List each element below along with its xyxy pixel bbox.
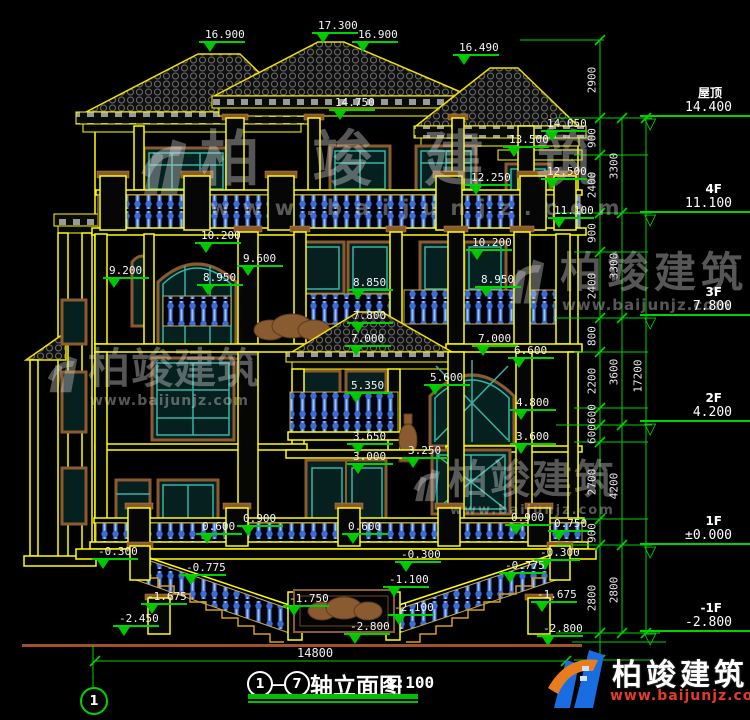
floor-level-marker: 4F11.100▽ bbox=[640, 182, 750, 213]
chain-dim-label: 3300 bbox=[608, 253, 621, 280]
chain-dim-label: 800 bbox=[586, 326, 599, 346]
elevation-marker: -2.800 bbox=[344, 621, 390, 644]
elevation-marker: -2.800 bbox=[537, 623, 583, 646]
elevation-marker: 5.350 bbox=[345, 380, 391, 403]
elevation-marker: -0.300 bbox=[92, 546, 138, 569]
floor-level-marker: 3F7.800▽ bbox=[640, 285, 750, 316]
cad-elevation-screenshot: .roof{fill:url(#tiles);stroke:#f0e000;st… bbox=[0, 0, 750, 720]
elevation-marker: 8.950 bbox=[197, 272, 243, 295]
elevation-marker: 12.500 bbox=[541, 166, 587, 189]
axis-dash: — bbox=[271, 677, 285, 693]
elevation-marker: 14.750 bbox=[329, 97, 375, 120]
chain-dim-label: 2400 bbox=[586, 273, 599, 300]
chain-dim-label: 600 bbox=[586, 424, 599, 444]
elevation-marker: -1.100 bbox=[383, 574, 429, 597]
elevation-marker: 7.800 bbox=[347, 310, 393, 333]
logo-website: www.baijunjz.com bbox=[610, 688, 750, 704]
drawing-scale: 1:100 bbox=[386, 673, 434, 692]
chain-dim-label: 17200 bbox=[632, 359, 645, 392]
title-underline-thick bbox=[248, 694, 418, 699]
floor-level-marker: 屋顶14.400▽ bbox=[640, 86, 750, 117]
elevation-marker: 16.900 bbox=[352, 29, 398, 52]
elevation-marker: 12.250 bbox=[465, 172, 511, 195]
floor-level-marker: 2F4.200▽ bbox=[640, 391, 750, 422]
elevation-marker: 5.600 bbox=[424, 372, 470, 395]
elevation-marker: -0.775 bbox=[499, 560, 545, 583]
elevation-marker: -0.775 bbox=[180, 562, 226, 585]
elevation-marker: 0.900 bbox=[237, 513, 283, 536]
elevation-marker: 0.600 bbox=[342, 521, 388, 544]
chain-dim-label: 3300 bbox=[608, 153, 621, 180]
axis-bubble-1: 1 bbox=[80, 687, 108, 715]
overall-width-dim: 14800 bbox=[297, 646, 333, 660]
elevation-marker: -1.675 bbox=[531, 589, 577, 612]
chain-dim-label: 2900 bbox=[586, 67, 599, 94]
chain-dim-label: 2400 bbox=[586, 172, 599, 199]
chain-dim-label: 900 bbox=[586, 523, 599, 543]
elevation-marker: 0.600 bbox=[196, 521, 242, 544]
chain-dim-label: 4200 bbox=[608, 473, 621, 500]
chain-dim-label: 900 bbox=[586, 128, 599, 148]
elevation-marker: 7.000 bbox=[345, 333, 391, 356]
chain-dim-label: 900 bbox=[586, 223, 599, 243]
elevation-marker: 9.200 bbox=[103, 265, 149, 288]
chain-dim-label: 2200 bbox=[586, 368, 599, 395]
watermark-text: 柏竣建筑 bbox=[88, 348, 260, 390]
floor-level-marker: -1F-2.800▽ bbox=[640, 601, 750, 632]
elevation-marker: 16.490 bbox=[453, 42, 499, 65]
elevation-marker: 8.950 bbox=[475, 274, 521, 297]
chain-dim-label: 2800 bbox=[586, 585, 599, 612]
watermark-url: www.baijunjz.com bbox=[90, 394, 249, 408]
elevation-marker: -1.675 bbox=[141, 591, 187, 614]
elevation-marker: 3.250 bbox=[402, 445, 448, 468]
chain-dim-label: 3600 bbox=[608, 359, 621, 386]
title-underline-thin bbox=[248, 701, 418, 703]
chain-dim-label: 2700 bbox=[586, 469, 599, 496]
watermark-icon bbox=[138, 132, 194, 198]
elevation-marker: 3.600 bbox=[510, 431, 556, 454]
elevation-marker: 13.500 bbox=[503, 134, 549, 157]
elevation-marker: 9.600 bbox=[237, 253, 283, 276]
elevation-marker: -2.450 bbox=[113, 613, 159, 636]
elevation-marker: 0.900 bbox=[505, 512, 551, 535]
elevation-marker: 3.000 bbox=[347, 451, 393, 474]
watermark-icon bbox=[46, 346, 82, 400]
logo-icon bbox=[546, 646, 608, 712]
elevation-marker: 6.600 bbox=[508, 345, 554, 368]
elevation-marker: -2.100 bbox=[388, 602, 434, 625]
floor-level-marker: 1F±0.000▽ bbox=[640, 514, 750, 545]
elevation-marker: 16.900 bbox=[199, 29, 245, 52]
chain-dim-label: 600 bbox=[586, 404, 599, 424]
chain-dim-label: 2800 bbox=[608, 577, 621, 604]
elevation-marker: 8.850 bbox=[347, 277, 393, 300]
elevation-marker: 10.200 bbox=[195, 230, 241, 253]
elevation-marker: 4.800 bbox=[510, 397, 556, 420]
elevation-marker: -1.750 bbox=[283, 593, 329, 616]
elevation-marker: -0.300 bbox=[395, 549, 441, 572]
elevation-marker: 10.200 bbox=[466, 237, 512, 260]
